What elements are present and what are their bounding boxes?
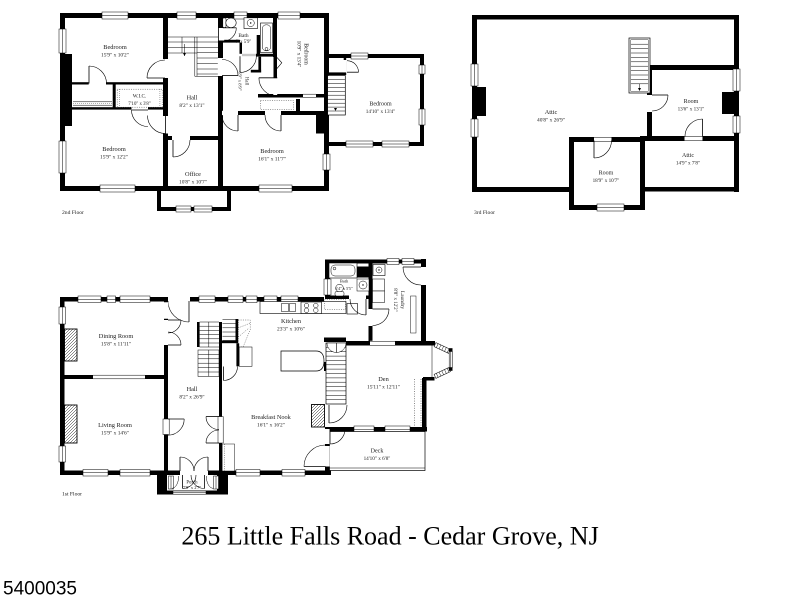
svg-text:2nd Floor: 2nd Floor [62,210,84,216]
svg-text:Room: Room [684,99,699,105]
svg-text:Hall: Hall [187,95,198,102]
svg-text:23'3" x 10'6": 23'3" x 10'6" [277,326,305,332]
svg-text:8'2" x 26'9": 8'2" x 26'9" [179,394,204,400]
svg-text:7'8" x 2'7": 7'8" x 2'7" [183,485,202,490]
svg-text:7'10" x 3'8": 7'10" x 3'8" [128,102,150,107]
svg-text:Bedroom: Bedroom [260,148,284,155]
svg-text:265 Little Falls Road - Cedar: 265 Little Falls Road - Cedar Grove, NJ [181,522,598,551]
svg-text:1st Floor: 1st Floor [62,492,82,498]
svg-text:Attic: Attic [682,153,694,159]
svg-text:16'1" x 16'2": 16'1" x 16'2" [257,422,285,428]
svg-text:15'9" x 12'2": 15'9" x 12'2" [100,154,128,160]
svg-text:Living Room: Living Room [98,422,132,429]
svg-text:Bedroom: Bedroom [369,102,392,108]
svg-text:10'9" x 13'4": 10'9" x 13'4" [296,41,302,68]
svg-text:Bedroom: Bedroom [303,43,309,65]
svg-text:8'2" x 13'1": 8'2" x 13'1" [179,103,204,109]
svg-text:18'9" x 10'7": 18'9" x 10'7" [593,178,620,184]
svg-text:14'9" x 7'8": 14'9" x 7'8" [676,160,700,166]
svg-text:13'6" x 13'1": 13'6" x 13'1" [678,106,705,112]
svg-text:Bath: Bath [340,279,349,284]
svg-text:15'9" x 10'2": 15'9" x 10'2" [101,52,129,58]
svg-text:5400035: 5400035 [3,579,77,599]
svg-text:Breakfast Nook: Breakfast Nook [251,414,292,421]
svg-text:Den: Den [378,376,389,383]
svg-text:Bedroom: Bedroom [102,146,126,153]
svg-text:10'8" x 10'7": 10'8" x 10'7" [179,179,207,185]
svg-text:Bedroom: Bedroom [103,44,127,51]
svg-text:6'9" x 8'9": 6'9" x 8'9" [238,71,243,90]
svg-text:Hall: Hall [187,386,198,393]
svg-text:16'1" x 11'7": 16'1" x 11'7" [258,156,286,162]
svg-text:W.I.C.: W.I.C. [133,94,147,100]
svg-text:Hall: Hall [244,77,249,86]
svg-text:Laundry: Laundry [399,291,405,310]
svg-text:15'11" x 12'11": 15'11" x 12'11" [367,384,400,390]
svg-text:14'10" x 6'8": 14'10" x 6'8" [364,456,391,462]
svg-text:14'10" x 13'4": 14'10" x 13'4" [366,109,395,115]
svg-text:3rd Floor: 3rd Floor [474,210,495,216]
svg-text:15'9" x 14'6": 15'9" x 14'6" [101,430,129,436]
svg-text:Deck: Deck [371,449,384,455]
svg-text:15'8" x 11'11": 15'8" x 11'11" [101,341,131,347]
svg-text:8'8" x 12'2": 8'8" x 12'2" [392,288,397,311]
svg-text:Kitchen: Kitchen [281,318,302,325]
svg-text:6'4" x 5'5": 6'4" x 5'5" [335,286,353,291]
svg-text:Room: Room [599,171,614,177]
svg-text:Office: Office [185,171,201,178]
svg-text:40'8" x 26'9": 40'8" x 26'9" [537,117,565,123]
svg-text:Dining Room: Dining Room [99,333,134,340]
svg-text:7' x 5'9": 7' x 5'9" [236,40,252,45]
svg-text:Attic: Attic [545,109,558,116]
svg-text:Bath: Bath [238,33,248,39]
